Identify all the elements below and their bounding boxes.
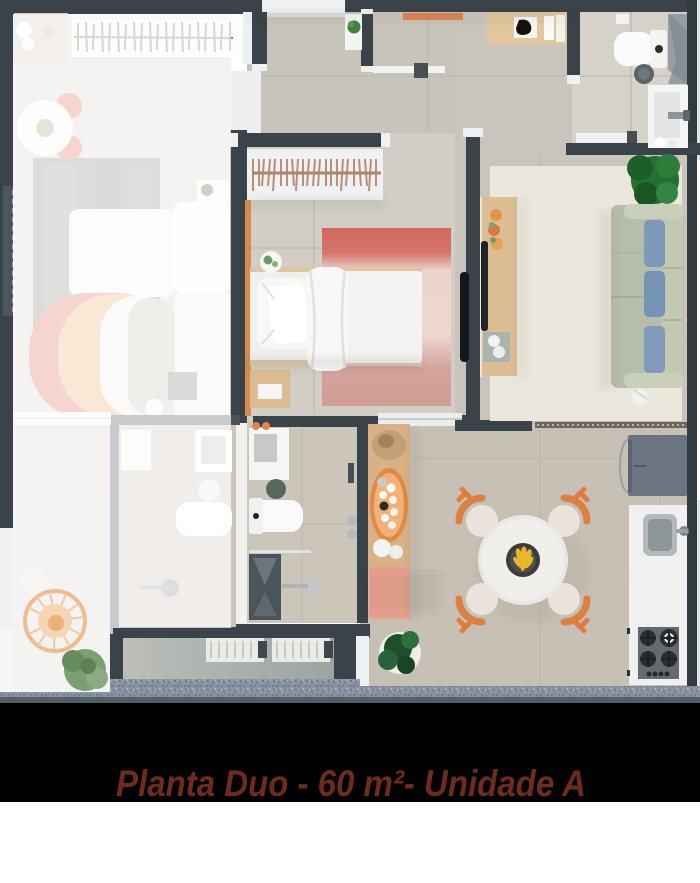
svg-text:Planta Duo - 60 m²- Unidade A: Planta Duo - 60 m²- Unidade A [116,763,586,804]
